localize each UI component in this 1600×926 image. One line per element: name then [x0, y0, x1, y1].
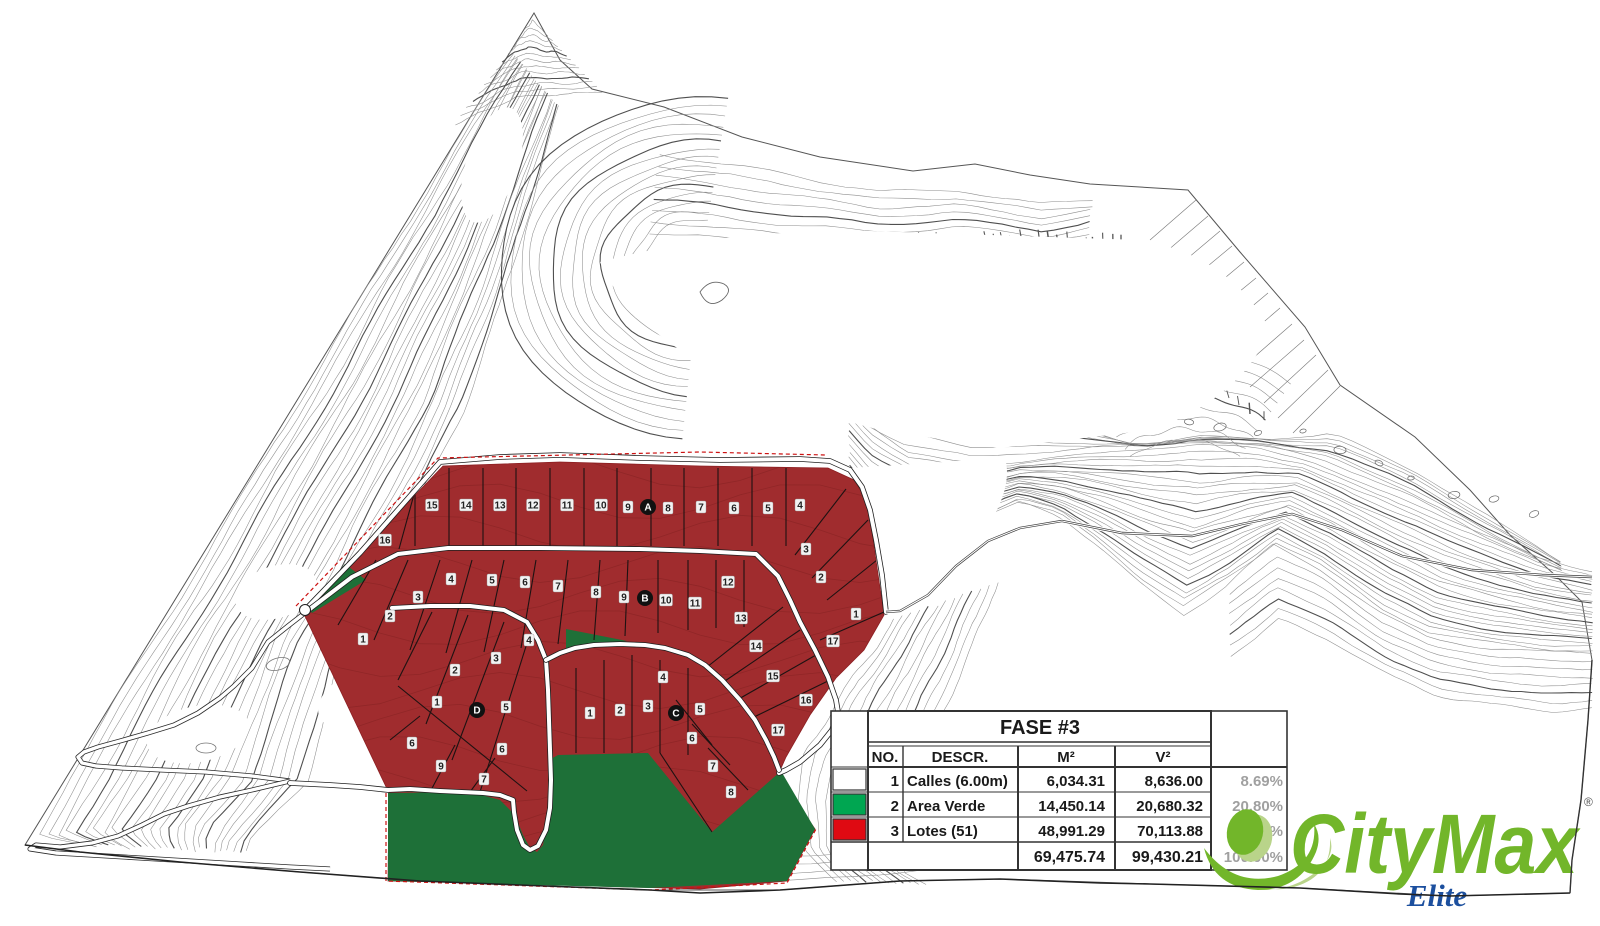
svg-text:A: A [644, 503, 651, 514]
svg-text:D: D [473, 706, 480, 717]
svg-text:4: 4 [660, 673, 666, 684]
svg-text:6: 6 [689, 734, 695, 745]
svg-text:14,450.14: 14,450.14 [1038, 798, 1105, 815]
svg-text:Lotes (51): Lotes (51) [907, 823, 978, 840]
svg-text:11: 11 [690, 599, 701, 610]
svg-text:9: 9 [438, 762, 444, 773]
svg-text:1: 1 [587, 709, 593, 720]
svg-text:2: 2 [818, 573, 824, 584]
svg-text:12: 12 [722, 578, 734, 589]
svg-text:7: 7 [698, 503, 704, 514]
svg-text:1: 1 [853, 610, 859, 621]
svg-text:16: 16 [379, 536, 391, 547]
svg-text:48,991.29: 48,991.29 [1038, 823, 1105, 840]
svg-text:8: 8 [728, 788, 734, 799]
svg-text:B: B [641, 594, 648, 605]
svg-text:7: 7 [555, 582, 561, 593]
svg-text:17: 17 [827, 637, 839, 648]
svg-text:1: 1 [434, 698, 440, 709]
svg-text:4: 4 [448, 575, 454, 586]
svg-text:1: 1 [360, 635, 366, 646]
svg-text:7: 7 [710, 762, 716, 773]
svg-text:3: 3 [891, 823, 899, 840]
svg-text:Calles (6.00m): Calles (6.00m) [907, 773, 1008, 790]
svg-text:70,113.88: 70,113.88 [1137, 823, 1203, 840]
svg-text:11: 11 [562, 501, 573, 512]
svg-text:15: 15 [767, 672, 779, 683]
svg-text:M²: M² [1057, 749, 1075, 766]
svg-text:9: 9 [625, 503, 631, 514]
svg-text:6: 6 [522, 578, 528, 589]
svg-text:®: ® [1584, 795, 1593, 809]
svg-text:DESCR.: DESCR. [932, 749, 989, 766]
svg-text:12: 12 [527, 501, 539, 512]
svg-text:8.69%: 8.69% [1240, 773, 1283, 790]
svg-text:6: 6 [409, 739, 415, 750]
svg-text:6: 6 [499, 745, 505, 756]
svg-text:5: 5 [503, 703, 509, 714]
svg-text:CityMax: CityMax [1290, 797, 1581, 891]
svg-text:Area Verde: Area Verde [907, 798, 985, 815]
svg-text:8,636.00: 8,636.00 [1145, 773, 1203, 790]
svg-text:14: 14 [750, 642, 762, 653]
svg-text:FASE #3: FASE #3 [1000, 717, 1080, 739]
svg-text:2: 2 [452, 666, 458, 677]
svg-text:NO.: NO. [872, 749, 899, 766]
svg-text:20,680.32: 20,680.32 [1136, 798, 1203, 815]
svg-text:9: 9 [621, 593, 627, 604]
svg-text:8: 8 [593, 588, 599, 599]
svg-text:15: 15 [426, 501, 438, 512]
svg-text:8: 8 [665, 504, 671, 515]
svg-text:69,475.74: 69,475.74 [1034, 849, 1105, 866]
svg-text:17: 17 [772, 726, 784, 737]
svg-text:V²: V² [1156, 749, 1171, 766]
svg-text:13: 13 [494, 501, 506, 512]
svg-text:99,430.21: 99,430.21 [1132, 849, 1203, 866]
svg-text:5: 5 [765, 504, 771, 515]
svg-text:10: 10 [595, 501, 607, 512]
svg-text:3: 3 [493, 654, 499, 665]
svg-text:4: 4 [526, 636, 532, 647]
svg-text:16: 16 [800, 696, 812, 707]
svg-text:C: C [672, 709, 679, 720]
svg-text:7: 7 [481, 775, 487, 786]
svg-text:2: 2 [891, 798, 899, 815]
svg-text:3: 3 [803, 545, 809, 556]
svg-text:1: 1 [891, 773, 899, 790]
svg-text:2: 2 [617, 706, 623, 717]
svg-text:14: 14 [460, 501, 472, 512]
svg-text:5: 5 [489, 576, 495, 587]
svg-text:5: 5 [697, 705, 703, 716]
svg-text:4: 4 [797, 501, 803, 512]
svg-text:6,034.31: 6,034.31 [1047, 773, 1105, 790]
svg-text:3: 3 [415, 593, 421, 604]
svg-text:3: 3 [645, 702, 651, 713]
svg-text:10: 10 [660, 596, 672, 607]
svg-text:6: 6 [731, 504, 737, 515]
svg-text:2: 2 [387, 612, 393, 623]
svg-text:13: 13 [735, 614, 747, 625]
